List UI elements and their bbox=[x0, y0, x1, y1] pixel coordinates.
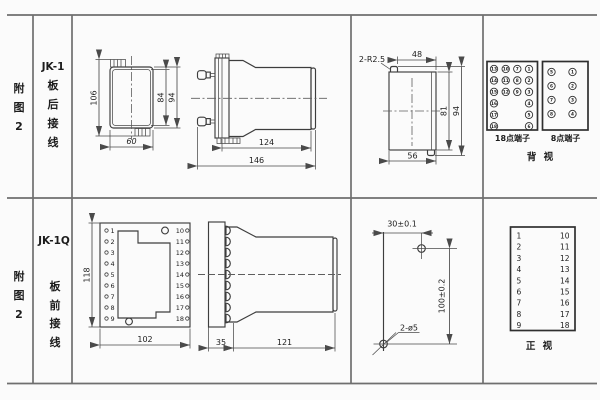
table-number-left: 4 bbox=[517, 265, 522, 274]
plate-terminal-circle bbox=[105, 284, 108, 287]
table-number-right: 18 bbox=[560, 321, 570, 330]
dim-label-102: 102 bbox=[137, 335, 152, 344]
terminal-number: 9 bbox=[516, 90, 519, 96]
drilling-pattern-drawing: 30±0.1 100±0.2 2-ø5 bbox=[372, 220, 457, 356]
table-number-left: 6 bbox=[517, 288, 522, 297]
terminal-number: 6 bbox=[528, 124, 531, 130]
plate-terminal-number: 1 bbox=[111, 227, 115, 235]
terminal-number: 17 bbox=[491, 113, 497, 119]
dim-label-94b: 94 bbox=[452, 106, 461, 116]
plate-terminal-circle bbox=[105, 306, 108, 309]
table-number-right: 15 bbox=[560, 288, 570, 297]
table-number-right: 14 bbox=[560, 276, 570, 285]
plate-terminal-circle bbox=[186, 284, 189, 287]
terminal-number: 8 bbox=[516, 78, 519, 84]
jk1q-plate-drawing: 110211312413514615716817918 118 102 bbox=[83, 223, 191, 349]
relay-body-step-outline bbox=[118, 231, 170, 318]
plate-terminal-circle bbox=[186, 273, 189, 276]
mounting-screw-top bbox=[198, 71, 216, 80]
terminal-block-top bbox=[111, 60, 126, 68]
terminal-block-bottom bbox=[135, 129, 150, 137]
plate-terminal-number: 9 bbox=[111, 315, 115, 323]
terminal-bump bbox=[226, 281, 230, 290]
table-number-left: 3 bbox=[517, 254, 522, 263]
dim-label-30: 30±0.1 bbox=[387, 220, 417, 229]
jk1q-side-view-drawing: 35 121 bbox=[198, 222, 341, 352]
row-top-labels: 附 图 2 JK-1 板 后 接 线 bbox=[14, 61, 65, 149]
table-number-right: 16 bbox=[560, 299, 570, 308]
terminal-number: 2 bbox=[571, 84, 574, 90]
dim-label-60: 60 bbox=[126, 137, 136, 146]
dim-label-84: 84 bbox=[157, 92, 166, 102]
cutout-tab-bottom bbox=[428, 150, 435, 156]
terminal-box-8-caption: 8点端子 bbox=[551, 133, 581, 143]
dim-label-106: 106 bbox=[90, 90, 99, 105]
wiring-char: 后 bbox=[48, 97, 59, 111]
terminal-number: 11 bbox=[503, 78, 509, 84]
dim-label-124: 124 bbox=[259, 138, 274, 147]
plate-terminal-number: 15 bbox=[176, 282, 184, 290]
cutout-tab-top bbox=[391, 67, 398, 73]
dim-label-56: 56 bbox=[407, 152, 417, 161]
plate-terminal-number: 10 bbox=[176, 227, 184, 235]
jk1-side-view-drawing: 124 146 bbox=[191, 54, 327, 170]
dim-label-radius: 2-R2.5 bbox=[359, 55, 385, 64]
figure-sheet: 附 图 2 JK-1 板 后 接 线 附 图 2 JK-1Q 板 前 接 线 1… bbox=[0, 0, 600, 400]
fig-label-char: 附 bbox=[14, 269, 25, 283]
table-number-left: 5 bbox=[517, 276, 522, 285]
mounting-hole-bottom bbox=[126, 318, 133, 325]
terminal-number: 5 bbox=[528, 113, 531, 119]
plate-terminal-number: 4 bbox=[111, 260, 115, 268]
dim-label-146: 146 bbox=[249, 156, 264, 165]
terminal-number: 5 bbox=[550, 70, 553, 76]
plate-terminal-circle bbox=[105, 262, 108, 265]
plate-terminal-number: 3 bbox=[111, 249, 115, 257]
terminal-number: 15 bbox=[491, 90, 497, 96]
wiring-char: 板 bbox=[50, 279, 62, 293]
terminal-number: 7 bbox=[516, 67, 519, 73]
plate-terminal-circle bbox=[105, 240, 108, 243]
terminal-number: 1 bbox=[571, 70, 574, 76]
terminal-number: 3 bbox=[528, 90, 531, 96]
table-number-left: 8 bbox=[517, 310, 522, 319]
terminal-comb-bottom bbox=[217, 138, 240, 144]
mounting-hole-top bbox=[162, 227, 169, 234]
plate-terminal-number: 2 bbox=[111, 238, 115, 246]
plate-terminal-circle bbox=[105, 317, 108, 320]
plate-terminal-number: 5 bbox=[111, 271, 115, 279]
plate-terminal-circle bbox=[105, 251, 108, 254]
terminal-number: 12 bbox=[503, 90, 509, 96]
terminal-number: 18 bbox=[491, 124, 497, 130]
fig-label-char: 2 bbox=[15, 120, 23, 133]
model-label: JK-1Q bbox=[37, 235, 70, 247]
row-bottom-labels: 附 图 2 JK-1Q 板 前 接 线 bbox=[14, 235, 70, 349]
plate-terminal-circle bbox=[186, 229, 189, 232]
plate-terminal-circle bbox=[186, 262, 189, 265]
plate-terminal-number: 6 bbox=[111, 282, 115, 290]
terminal-number: 6 bbox=[550, 84, 553, 90]
terminal-number: 4 bbox=[571, 112, 574, 118]
terminal-number: 10 bbox=[503, 67, 509, 73]
dim-label-100: 100±0.2 bbox=[438, 279, 447, 314]
table-number-left: 2 bbox=[517, 243, 522, 252]
terminal-grid-8: 56781234 bbox=[548, 68, 576, 117]
terminal-bump bbox=[226, 248, 230, 257]
dim-label-94: 94 bbox=[168, 92, 177, 102]
terminal-number: 14 bbox=[491, 78, 497, 84]
plate-terminal-circle bbox=[105, 295, 108, 298]
fig-label-char: 图 bbox=[14, 289, 25, 302]
plate-terminal-number: 14 bbox=[176, 271, 184, 279]
jk1-front-view-drawing: 106 84 94 60 bbox=[90, 56, 181, 151]
plate-terminal-number: 16 bbox=[176, 293, 184, 301]
dim-label-118: 118 bbox=[83, 267, 92, 282]
terminal-bump bbox=[226, 292, 230, 301]
wiring-char: 接 bbox=[50, 316, 61, 330]
table-number-left: 9 bbox=[517, 321, 522, 330]
plate-terminal-circle bbox=[186, 251, 189, 254]
plate-terminal-circle bbox=[186, 306, 189, 309]
rear-terminal-views: 131415161718101112789123456 56781234 18点… bbox=[487, 62, 588, 164]
terminal-number: 1 bbox=[528, 67, 531, 73]
panel-cutout-drawing: 48 2-R2.5 81 94 56 bbox=[359, 50, 465, 165]
terminal-bump bbox=[226, 259, 230, 268]
fig-label-char: 附 bbox=[14, 81, 25, 95]
terminal-number: 3 bbox=[571, 98, 574, 104]
terminal-table-rows: 110211312413514615716817918 bbox=[517, 232, 570, 331]
fig-label-char: 图 bbox=[14, 101, 25, 114]
mounting-screw-bottom bbox=[198, 117, 216, 126]
model-label: JK-1 bbox=[41, 61, 65, 73]
plate-terminal-number: 11 bbox=[176, 238, 184, 246]
front-terminal-view: 110211312413514615716817918 正 视 bbox=[511, 227, 576, 352]
plate-terminal-circle bbox=[105, 273, 108, 276]
wiring-char: 接 bbox=[48, 116, 59, 130]
table-number-right: 13 bbox=[560, 265, 570, 274]
terminal-number: 4 bbox=[528, 101, 531, 107]
wiring-char: 线 bbox=[48, 135, 59, 149]
terminal-grid-18: 131415161718101112789123456 bbox=[490, 65, 532, 130]
plate-terminal-number: 8 bbox=[111, 304, 115, 312]
front-view-caption: 正 视 bbox=[526, 340, 554, 352]
wiring-char: 前 bbox=[50, 298, 61, 312]
dim-label-holes: 2-ø5 bbox=[400, 324, 418, 333]
terminal-number: 7 bbox=[550, 98, 553, 104]
table-number-right: 10 bbox=[560, 232, 570, 241]
plate-terminal-circle bbox=[186, 317, 189, 320]
terminal-comb-top bbox=[216, 54, 229, 58]
terminal-number: 2 bbox=[528, 78, 531, 84]
table-number-left: 1 bbox=[517, 232, 522, 241]
rear-view-caption: 背 视 bbox=[527, 151, 555, 163]
dim-label-121: 121 bbox=[277, 338, 292, 347]
terminal-number: 16 bbox=[491, 101, 497, 107]
terminal-number: 8 bbox=[550, 112, 553, 118]
terminal-box-18-caption: 18点端子 bbox=[495, 133, 530, 143]
table-number-left: 7 bbox=[517, 299, 522, 308]
plate-terminal-number: 12 bbox=[176, 249, 184, 257]
terminal-bump bbox=[226, 237, 230, 246]
plate-terminal-number: 18 bbox=[176, 315, 184, 323]
dim-label-48: 48 bbox=[412, 50, 422, 59]
table-number-right: 12 bbox=[560, 254, 570, 263]
terminal-bump bbox=[226, 303, 230, 312]
wiring-char: 线 bbox=[50, 335, 61, 349]
table-number-right: 11 bbox=[560, 243, 570, 252]
dim-label-35: 35 bbox=[216, 338, 226, 347]
diagram-canvas: 附 图 2 JK-1 板 后 接 线 附 图 2 JK-1Q 板 前 接 线 1… bbox=[0, 0, 600, 400]
plate-terminal-number: 17 bbox=[176, 304, 184, 312]
table-number-right: 17 bbox=[560, 310, 570, 319]
plate-terminal-circle bbox=[186, 240, 189, 243]
plate-terminal-number: 7 bbox=[111, 293, 115, 301]
wiring-char: 板 bbox=[48, 78, 60, 92]
plate-terminal-circle bbox=[186, 295, 189, 298]
dim-label-81: 81 bbox=[440, 106, 449, 116]
plate-terminal-circle bbox=[105, 229, 108, 232]
terminal-number: 13 bbox=[491, 67, 497, 73]
plate-terminal-number: 13 bbox=[176, 260, 184, 268]
fig-label-char: 2 bbox=[15, 308, 23, 321]
